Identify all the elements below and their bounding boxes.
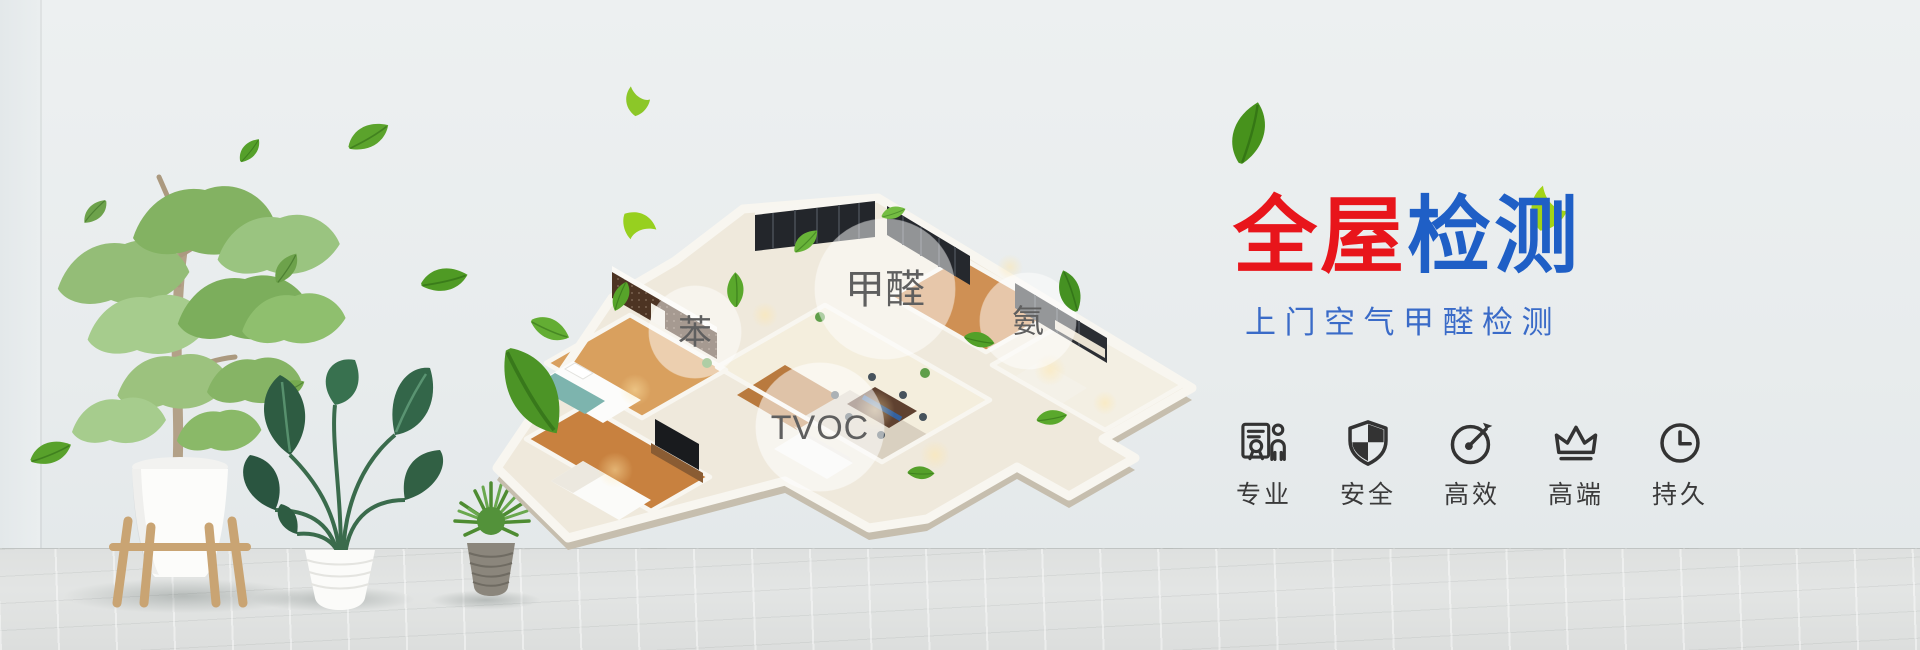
badge-person-icon (1239, 418, 1289, 468)
ammonia-bubble: 氨 (980, 273, 1076, 369)
feature-label: 高端 (1548, 475, 1604, 511)
svg-text:TVOC: TVOC (771, 409, 869, 447)
potted-leafy-plant (235, 360, 460, 605)
gauge-icon (1447, 418, 1497, 468)
feature-label: 持久 (1652, 475, 1708, 511)
feature-highend: 高端 (1540, 418, 1612, 511)
apartment-3d-model: 苯 甲醛 氨 TVOC (455, 165, 1215, 565)
svg-text:甲醛: 甲醛 (845, 268, 925, 312)
feature-label: 安全 (1340, 475, 1396, 511)
wall-seam (40, 0, 42, 552)
shield-icon (1343, 418, 1393, 468)
svg-text:氨: 氨 (1012, 303, 1044, 339)
feature-lasting: 持久 (1644, 418, 1716, 511)
benzene-bubble: 苯 (649, 286, 741, 378)
page-title: 全屋检测 (1233, 190, 1581, 282)
tvoc-bubble: TVOC (756, 363, 884, 491)
hero-banner: 苯 甲醛 氨 TVOC (0, 0, 1920, 650)
feature-label: 专业 (1236, 475, 1292, 511)
clock-icon (1655, 418, 1705, 468)
feature-safe: 安全 (1332, 418, 1404, 511)
formaldehyde-bubble: 甲醛 (815, 219, 955, 359)
feature-professional: 专业 (1228, 418, 1300, 511)
headline-secondary: 检测 (1407, 189, 1581, 283)
white-ribbed-pot (305, 550, 375, 610)
feature-list: 专业 安全 高效 (1228, 418, 1716, 511)
feature-label: 高效 (1444, 475, 1500, 511)
subtitle: 上门空气甲醛检测 (1245, 297, 1561, 342)
headline-primary: 全屋 (1233, 189, 1407, 283)
svg-text:苯: 苯 (678, 314, 712, 352)
feature-efficient: 高效 (1436, 418, 1508, 511)
wall-corner (0, 0, 40, 560)
crown-icon (1551, 418, 1601, 468)
